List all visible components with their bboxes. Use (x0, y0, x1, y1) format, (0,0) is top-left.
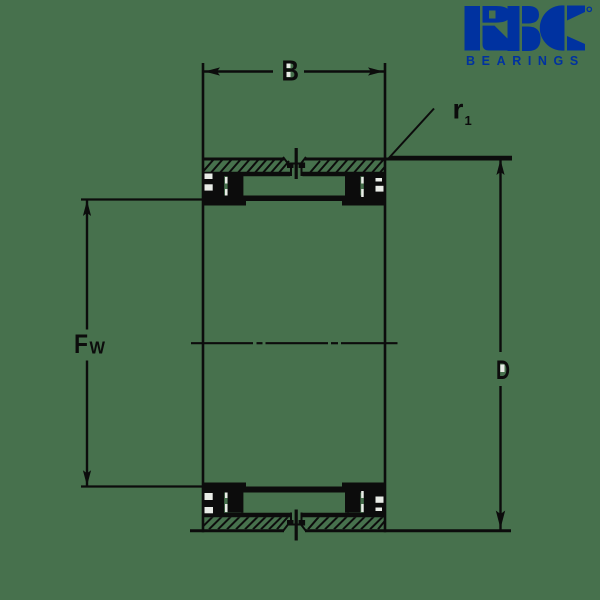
svg-text:W: W (90, 338, 106, 358)
svg-text:BEARINGS: BEARINGS (466, 54, 585, 68)
svg-text:r: r (453, 94, 464, 125)
svg-text:1: 1 (465, 113, 472, 128)
svg-text:B: B (282, 56, 300, 88)
svg-text:F: F (74, 329, 88, 359)
